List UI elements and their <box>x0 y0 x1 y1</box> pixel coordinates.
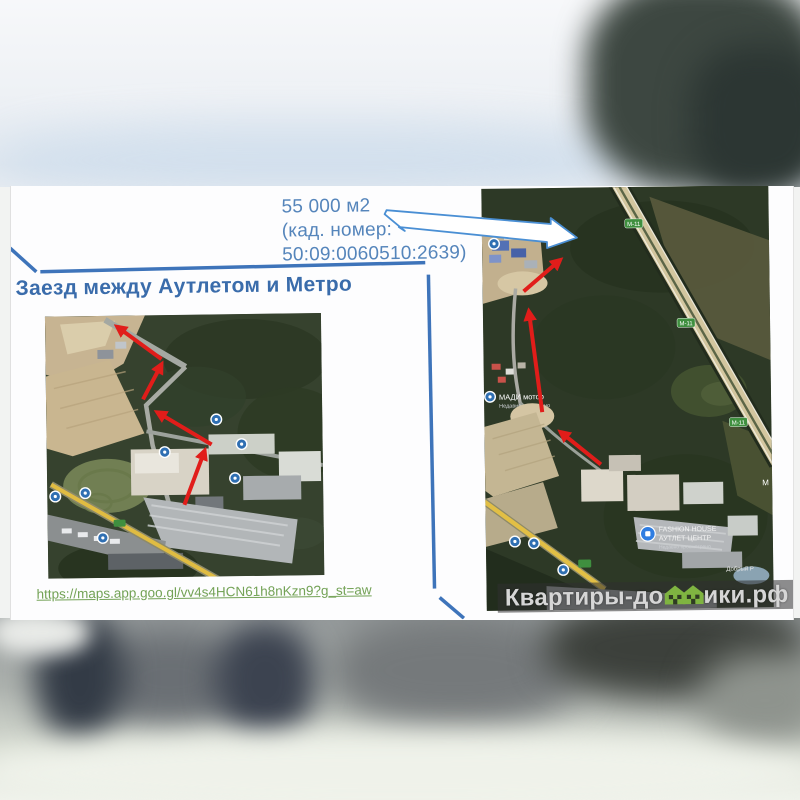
madi-label: МАДИ мотор <box>499 392 544 402</box>
watermark-suffix: ики.рф <box>703 580 788 609</box>
blur-blob <box>215 623 315 738</box>
plot-area-text: 55 000 м2 <box>281 193 466 219</box>
edge-road-label: М <box>762 478 769 487</box>
watermark-prefix: Квартиры-до <box>505 582 664 612</box>
blur-blob <box>0 733 800 800</box>
svg-text:М-11: М-11 <box>627 222 641 228</box>
section-heading: Заезд между Аутлетом и Метро <box>15 273 352 301</box>
blur-blob <box>690 45 800 187</box>
right-map-scene: М-11 М-11 М-11 <box>481 186 773 611</box>
left-map-scene <box>45 313 324 579</box>
blur-blob <box>330 618 580 728</box>
slide-content: 55 000 м2 (кад. номер: 50:09:0060510:263… <box>10 186 794 620</box>
blur-blob <box>0 125 620 187</box>
photo-of-listing-slide: 55 000 м2 (кад. номер: 50:09:0060510:263… <box>0 0 800 800</box>
svg-text:М-11: М-11 <box>679 321 693 327</box>
highway-badge: М-11 <box>677 318 695 327</box>
svg-text:М-11: М-11 <box>732 420 746 426</box>
left-satellite-map <box>45 313 324 579</box>
road-badge <box>114 520 126 527</box>
highway-badge: М-11 <box>729 417 747 426</box>
highway-badge: М-11 <box>625 219 643 228</box>
outlet-label-3: Недавно просмотрено <box>659 544 711 551</box>
right-satellite-map: М-11 М-11 М-11 <box>481 186 773 611</box>
blur-blob <box>700 653 800 748</box>
google-maps-link[interactable]: https://maps.app.goo.gl/vv4s4HCN61h8nKzn… <box>36 582 371 601</box>
cadastral-label: (кад. номер: <box>282 217 467 243</box>
blurred-top-background <box>0 0 800 187</box>
outlet-label-1: FASHION HOUSE <box>659 526 717 534</box>
cadastral-number: 50:09:0060510:2639) <box>282 241 467 267</box>
plot-size-annotation: 55 000 м2 (кад. номер: 50:09:0060510:263… <box>281 193 466 267</box>
blurred-bottom-background <box>0 618 800 800</box>
watermark: Квартиры-до <box>497 580 794 613</box>
house-icon <box>682 583 703 611</box>
slide-page: 55 000 м2 (кад. номер: 50:09:0060510:263… <box>10 186 794 620</box>
road-badge <box>578 560 591 568</box>
outlet-label-2: АУТЛЕТ ЦЕНТР <box>659 535 712 543</box>
village-label: Добрый Р <box>726 565 754 572</box>
